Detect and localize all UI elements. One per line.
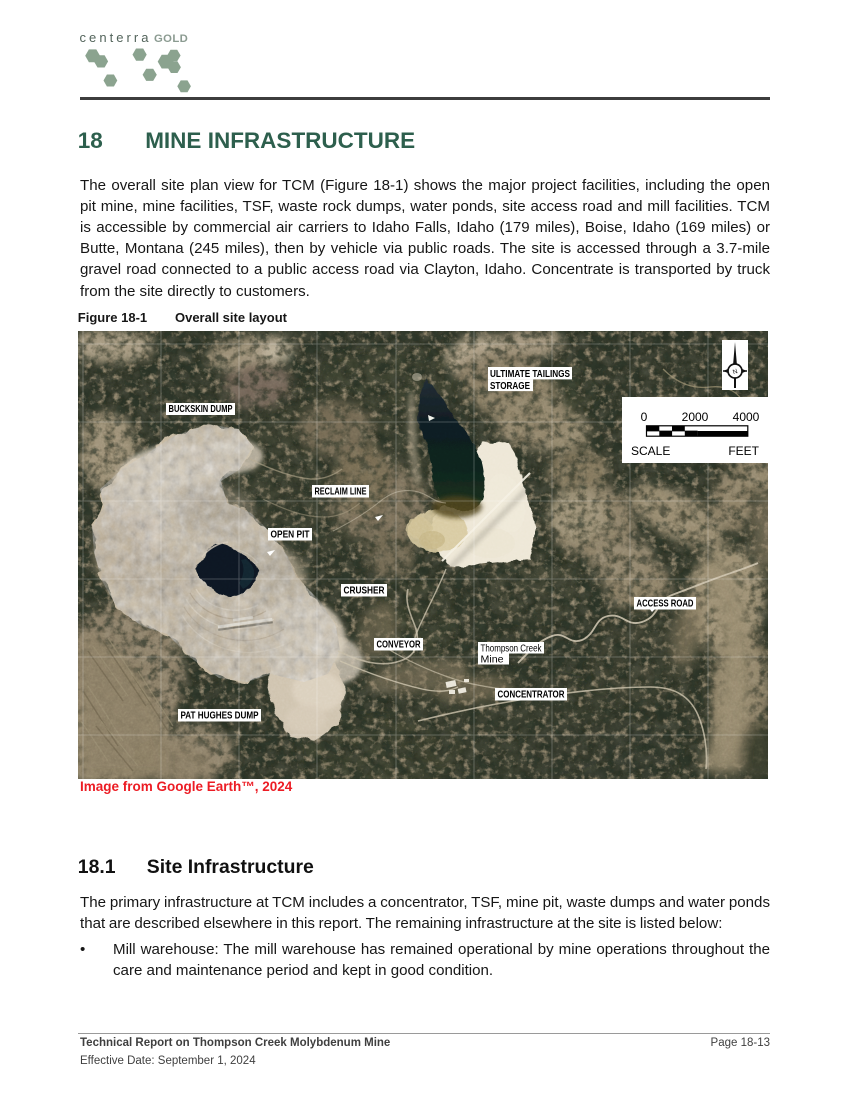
- svg-text:SCALE: SCALE: [631, 444, 670, 458]
- svg-text:GOLD: GOLD: [154, 33, 188, 45]
- svg-text:2000: 2000: [682, 410, 709, 424]
- svg-text:CRUSHER: CRUSHER: [344, 585, 385, 597]
- svg-text:STORAGE: STORAGE: [490, 380, 530, 392]
- svg-text:ACCESS ROAD: ACCESS ROAD: [637, 598, 694, 610]
- svg-text:Mine: Mine: [481, 654, 504, 665]
- svg-text:OPEN PIT: OPEN PIT: [271, 529, 310, 541]
- svg-text:FEET: FEET: [728, 444, 759, 458]
- svg-text:CONCENTRATOR: CONCENTRATOR: [498, 689, 565, 701]
- svg-text:CONVEYOR: CONVEYOR: [377, 639, 421, 651]
- svg-text:centerra: centerra: [80, 30, 152, 45]
- svg-text:0: 0: [641, 410, 648, 424]
- svg-text:4000: 4000: [733, 410, 760, 424]
- svg-text:BUCKSKIN DUMP: BUCKSKIN DUMP: [169, 403, 233, 415]
- svg-text:ULTIMATE TAILINGS: ULTIMATE TAILINGS: [490, 368, 570, 380]
- svg-text:RECLAIM LINE: RECLAIM LINE: [315, 486, 367, 498]
- svg-text:Thompson Creek: Thompson Creek: [481, 643, 543, 654]
- svg-text:PAT HUGHES DUMP: PAT HUGHES DUMP: [181, 710, 259, 722]
